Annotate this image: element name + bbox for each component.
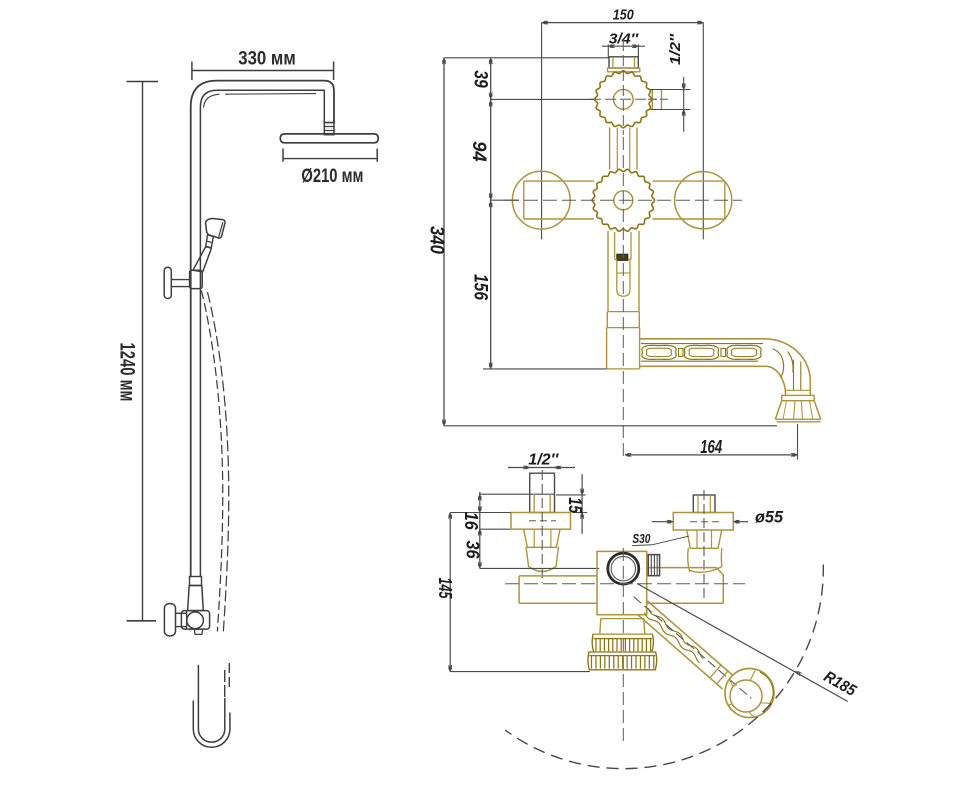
svg-text:164: 164 [700,437,722,457]
svg-text:330 мм: 330 мм [238,47,296,69]
svg-text:15: 15 [565,497,585,514]
svg-text:156: 156 [470,274,491,300]
svg-text:36: 36 [462,541,482,560]
svg-text:1/2″: 1/2″ [528,452,559,469]
svg-text:ø55: ø55 [755,508,784,527]
svg-text:1/2″: 1/2″ [667,33,684,65]
svg-text:Ø210 мм: Ø210 мм [301,165,363,187]
svg-text:39: 39 [470,70,491,88]
svg-text:145: 145 [435,578,455,600]
svg-text:340: 340 [425,226,447,254]
svg-text:1240 мм: 1240 мм [116,343,139,402]
svg-text:S30: S30 [632,532,650,546]
svg-text:150: 150 [613,6,635,23]
svg-text:16: 16 [461,512,481,531]
svg-text:94: 94 [468,141,489,162]
